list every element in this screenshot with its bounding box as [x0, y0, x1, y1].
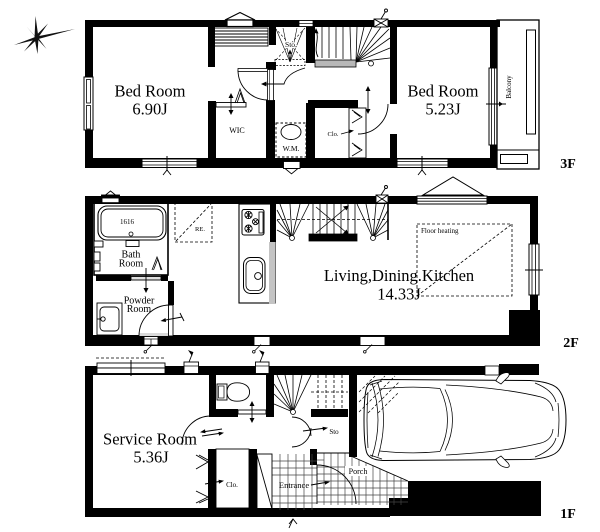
- svg-text:Balcony: Balcony: [505, 75, 513, 99]
- svg-text:Bed Room: Bed Room: [114, 82, 185, 101]
- svg-text:Service Room: Service Room: [103, 430, 197, 449]
- svg-text:RE.: RE.: [195, 226, 205, 233]
- svg-text:Clo.: Clo.: [226, 481, 238, 489]
- svg-text:Entrance: Entrance: [279, 480, 309, 490]
- svg-text:14.33J: 14.33J: [377, 285, 421, 304]
- svg-text:Sto: Sto: [329, 428, 339, 436]
- svg-text:1F: 1F: [560, 507, 576, 522]
- svg-text:2F: 2F: [563, 336, 579, 351]
- svg-text:5.23J: 5.23J: [425, 100, 461, 119]
- svg-text:Sto.: Sto.: [285, 40, 297, 49]
- svg-text:Room: Room: [119, 259, 144, 270]
- svg-text:6.90J: 6.90J: [132, 100, 168, 119]
- svg-text:Clo.: Clo.: [327, 131, 338, 138]
- svg-text:Living,Dining.Kitchen: Living,Dining.Kitchen: [324, 266, 474, 285]
- svg-text:5.36J: 5.36J: [133, 448, 169, 467]
- svg-text:1616: 1616: [120, 218, 135, 226]
- svg-text:Floor heating: Floor heating: [421, 227, 459, 235]
- svg-text:Porch: Porch: [349, 467, 368, 476]
- svg-text:Bed Room: Bed Room: [407, 82, 478, 101]
- svg-text:Room: Room: [127, 304, 152, 315]
- svg-text:3F: 3F: [560, 157, 576, 172]
- svg-text:W.M.: W.M.: [283, 144, 300, 153]
- svg-text:WIC: WIC: [229, 126, 245, 135]
